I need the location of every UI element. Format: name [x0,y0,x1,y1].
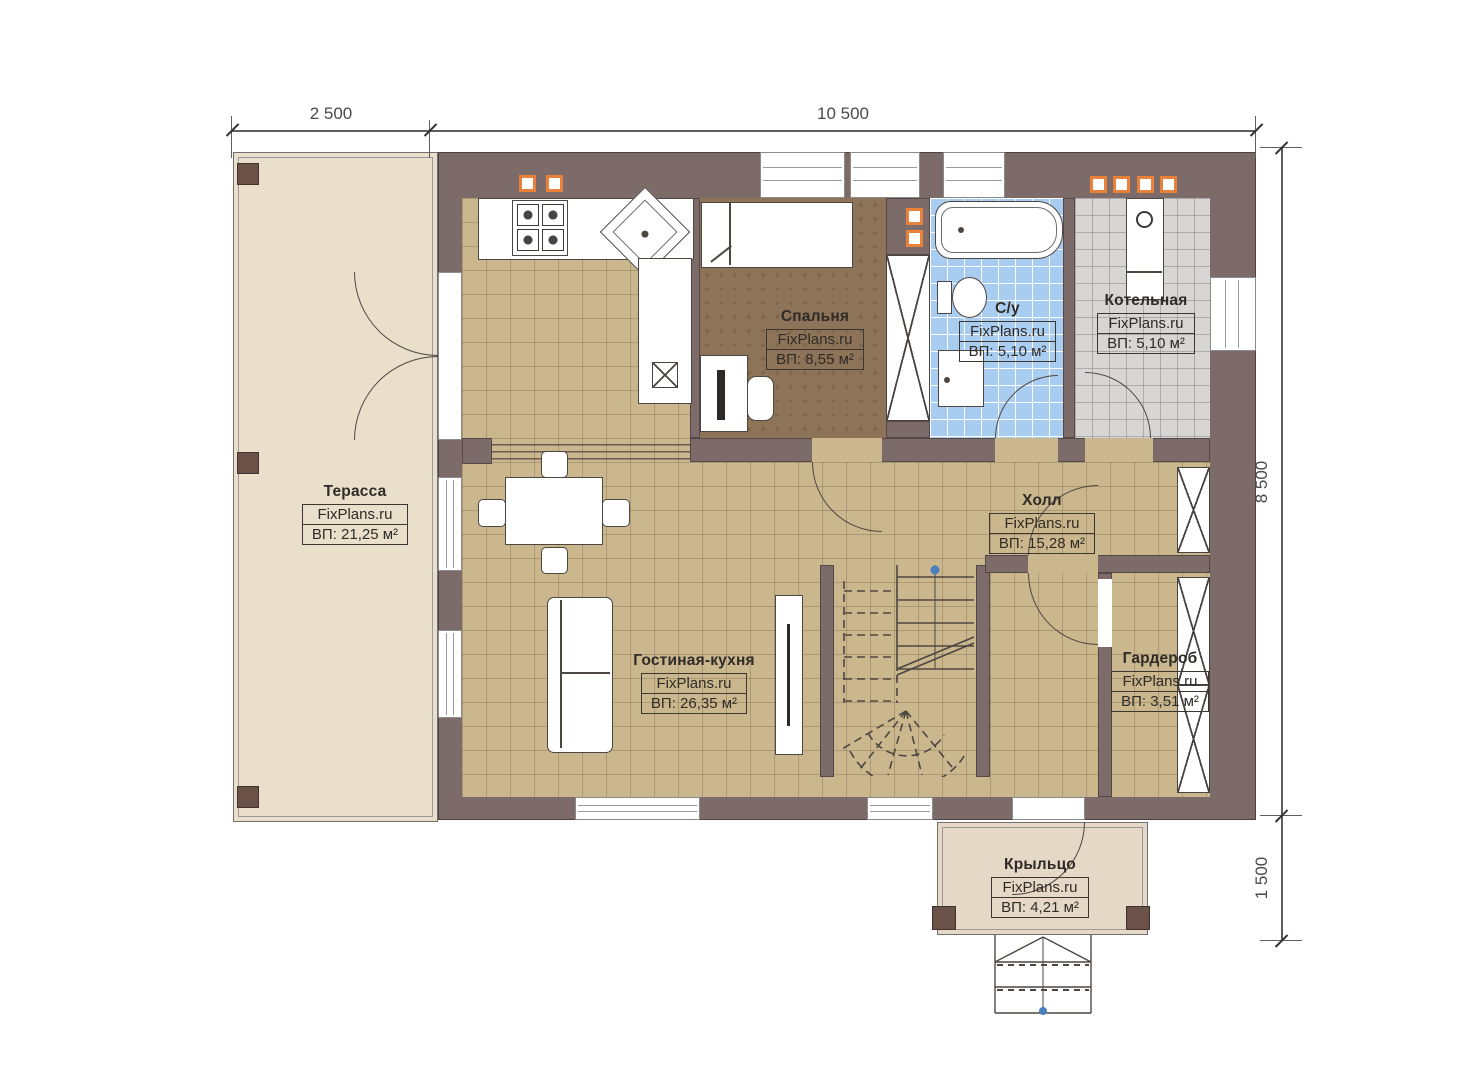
dimension-line-top [232,130,1256,132]
vent-square [906,208,923,225]
terrace-post-middle [237,452,259,474]
kitchen-stove [512,200,568,256]
room-brand: FixPlans.ru [642,674,746,693]
room-label-hall: Холл FixPlans.ru ВП: 15,28 м² [978,492,1106,554]
kitchen-electric-panel [652,362,678,388]
bedroom-door-opening [812,438,882,462]
room-brand: FixPlans.ru [1098,314,1194,333]
extension-line-top-left [231,116,232,158]
window-top-bathroom [943,152,1005,198]
room-name: Терасса [275,483,435,501]
room-area: ВП: 15,28 м² [990,533,1094,553]
room-area: ВП: 8,55 м² [767,349,863,369]
room-name: Гостиная-кухня [616,652,772,670]
stove-burner [542,229,564,251]
room-label-bathroom: С/у FixPlans.ru ВП: 5,10 м² [945,300,1070,362]
wardrobe-door-leaf [1098,579,1112,647]
dimension-terrace-width: 2 500 [281,104,381,124]
window-left-lower [438,630,462,718]
dimension-house-width: 10 500 [783,104,903,124]
room-info-box: FixPlans.ru ВП: 8,55 м² [766,329,864,370]
desk-monitor [717,370,725,420]
porch-steps [993,935,1093,1017]
porch-post-left [932,906,956,930]
window-bottom-stairs [867,797,933,820]
room-label-porch: Крыльцо FixPlans.ru ВП: 4,21 м² [962,856,1118,918]
vent-square [906,230,923,247]
dining-chair-bottom [541,547,568,574]
room-area: ВП: 4,21 м² [992,897,1088,917]
terrace-post-bottom [237,786,259,808]
bedroom-bath-wall-lower [886,421,930,438]
stove-burner [517,229,539,251]
room-label-terrace: Терасса FixPlans.ru ВП: 21,25 м² [275,483,435,545]
vent-square [519,175,536,192]
room-name: Гардероб [1095,650,1225,668]
vent-square [1137,176,1154,193]
stairs [834,563,976,777]
dimension-line-right [1281,148,1283,941]
window-bottom-living [575,797,700,820]
room-brand: FixPlans.ru [992,878,1088,897]
room-info-box: FixPlans.ru ВП: 26,35 м² [641,673,747,714]
room-brand: FixPlans.ru [767,330,863,349]
room-brand: FixPlans.ru [1112,672,1208,691]
room-name: Холл [978,492,1106,510]
hall-closet [1177,467,1210,553]
desk-chair [747,376,774,421]
room-name: С/у [945,300,1070,318]
boiler-gauge [1136,211,1153,228]
window-top-bedroom-right [850,152,920,198]
extension-line-top-mid [429,120,430,158]
kitchen-beam-lines [492,444,690,460]
room-area: ВП: 5,10 м² [1098,333,1194,353]
room-brand: FixPlans.ru [960,322,1056,341]
hall-door-opening [1028,555,1098,573]
window-top-bedroom-left [760,152,845,198]
room-info-box: FixPlans.ru ВП: 5,10 м² [959,321,1057,362]
bathroom-door-opening [995,438,1058,462]
dining-chair-left [478,499,506,527]
dining-chair-right [602,499,630,527]
boiler-unit [1126,198,1164,300]
bed-blanket-line [729,203,731,265]
bedroom-sliding-door [886,255,930,421]
room-name: Крыльцо [962,856,1118,874]
boiler-door-opening [1085,438,1153,462]
room-info-box: FixPlans.ru ВП: 5,10 м² [1097,313,1195,354]
bathtub-drain [958,227,964,233]
room-area: ВП: 21,25 м² [303,524,407,544]
tv-stand [775,595,803,755]
room-label-boiler: Котельная FixPlans.ru ВП: 5,10 м² [1080,292,1212,354]
window-right-boiler [1210,277,1256,351]
room-area: ВП: 26,35 м² [642,693,746,713]
vent-square [546,175,563,192]
sofa [547,597,613,753]
vent-square [1113,176,1130,193]
window-left-upper [438,477,462,571]
entry-door-opening [1012,797,1085,820]
room-info-box: FixPlans.ru ВП: 21,25 м² [302,504,408,545]
room-name: Котельная [1080,292,1212,310]
boiler-divider [1127,271,1162,273]
room-brand: FixPlans.ru [303,505,407,524]
porch-post-right [1126,906,1150,930]
stairs-right-wall [976,565,990,777]
terrace-door-opening [438,272,462,440]
dining-chair-top [541,451,568,478]
room-area: ВП: 5,10 м² [960,341,1056,361]
stove-burner [542,204,564,226]
dimension-porch-depth: 1 500 [1252,828,1272,928]
room-label-bedroom: Спальня FixPlans.ru ВП: 8,55 м² [745,308,885,370]
dining-table [505,477,603,545]
bed [701,202,853,268]
bathtub [935,201,1063,259]
room-info-box: FixPlans.ru ВП: 3,51 м² [1111,671,1209,712]
kitchen-wall-pier [462,438,492,464]
vent-square [1090,176,1107,193]
stove-burner [517,204,539,226]
room-info-box: FixPlans.ru ВП: 4,21 м² [991,877,1089,918]
floor-plan-canvas: 2 500 10 500 8 500 1 500 [0,0,1473,1080]
room-label-living-kitchen: Гостиная-кухня FixPlans.ru ВП: 26,35 м² [616,652,772,714]
tv-screen [787,624,790,726]
stairs-left-wall [820,565,834,777]
room-brand: FixPlans.ru [990,514,1094,533]
sofa-back-line [560,600,562,748]
desk [700,355,748,432]
terrace-post-top [237,163,259,185]
room-area: ВП: 3,51 м² [1112,691,1208,711]
room-label-wardrobe: Гардероб FixPlans.ru ВП: 3,51 м² [1095,650,1225,712]
sofa-seat-divider [562,672,610,674]
extension-line-top-right [1255,116,1256,158]
dimension-house-height: 8 500 [1252,432,1272,532]
washing-machine-knob [944,377,950,383]
room-info-box: FixPlans.ru ВП: 15,28 м² [989,513,1095,554]
vent-square [1160,176,1177,193]
room-name: Спальня [745,308,885,326]
